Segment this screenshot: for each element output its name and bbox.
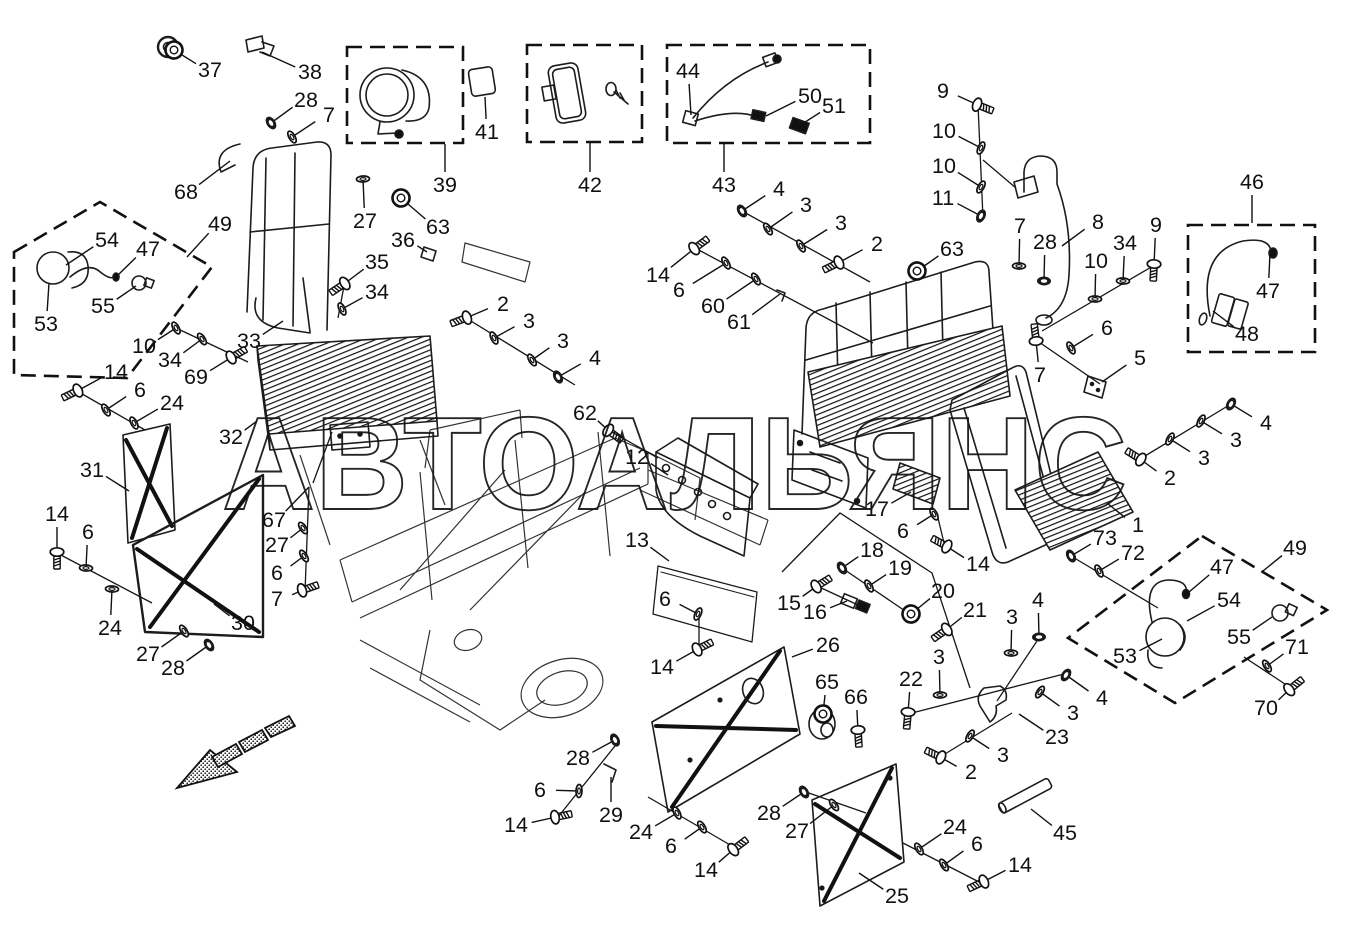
part-number: 42: [578, 173, 602, 197]
part-number: 44: [676, 59, 700, 83]
bolt-icon: [1027, 323, 1043, 346]
callout-2: 2: [1123, 445, 1176, 490]
washer-icon: [100, 403, 112, 417]
callout-49: 49: [1263, 536, 1307, 571]
callout-39: 39: [433, 144, 457, 197]
part-number: 15: [777, 591, 801, 615]
part-number: 10: [1084, 249, 1108, 273]
part-number: 24: [160, 391, 184, 415]
callout-9: 9: [1146, 213, 1162, 281]
callout-3: 3: [1034, 685, 1079, 725]
part-number: 48: [1235, 322, 1259, 346]
part-number: 22: [899, 667, 923, 691]
part-number: 47: [1256, 279, 1280, 303]
part-number: 28: [161, 656, 185, 680]
mirror-42-art: [542, 62, 628, 124]
part-number: 7: [323, 103, 335, 127]
part-number: 31: [80, 458, 104, 482]
part-number: 2: [1164, 466, 1176, 490]
part-number: 14: [966, 552, 990, 576]
part-number: 68: [174, 180, 198, 204]
grommet-icon: [814, 705, 833, 724]
callout-3: 3: [1164, 432, 1210, 470]
callout-45: 45: [1031, 809, 1077, 845]
callout-6: 6: [665, 820, 708, 858]
nut-icon: [797, 784, 812, 801]
callout-29: 29: [599, 777, 623, 827]
part-number: 63: [426, 215, 450, 239]
exploded-parts-diagram-page: 3738287682763363534394142434450514954475…: [0, 0, 1345, 937]
bolt-icon: [50, 548, 64, 569]
part-number: 51: [822, 94, 846, 118]
part-number: 49: [208, 212, 232, 236]
part-number: 38: [298, 60, 322, 84]
part-number: 54: [95, 228, 119, 252]
washer-icon: [1195, 414, 1206, 428]
callout-36: 36: [391, 228, 427, 252]
part-number: 6: [971, 832, 983, 856]
callout-18: 18: [835, 538, 884, 576]
part-number: 2: [965, 760, 977, 784]
washer-icon: [178, 624, 190, 638]
callout-6: 6: [1065, 316, 1113, 355]
bolt-icon: [821, 255, 846, 277]
part-number: 28: [757, 801, 781, 825]
part-number: 55: [91, 294, 115, 318]
callout-14: 14: [966, 853, 1032, 895]
callout-47: 47: [1189, 555, 1234, 592]
callout-2: 2: [449, 292, 509, 330]
callout-3: 3: [933, 645, 947, 698]
part-number: 14: [694, 858, 718, 882]
washer-icon: [298, 549, 310, 563]
bolt-icon: [929, 621, 954, 644]
callout-6: 6: [534, 778, 582, 802]
part-number: 24: [629, 820, 653, 844]
callout-3: 3: [762, 193, 812, 236]
part-number: 61: [727, 310, 751, 334]
part-number: 23: [1045, 725, 1069, 749]
part-number: 65: [815, 670, 839, 694]
nut-icon: [608, 732, 622, 749]
part-number: 24: [943, 815, 967, 839]
part-number: 28: [1033, 230, 1057, 254]
bolt-icon: [327, 275, 352, 298]
part-number: 7: [271, 587, 283, 611]
callout-23: 23: [1019, 714, 1069, 749]
part-number: 33: [237, 329, 261, 353]
part-number: 28: [294, 88, 318, 112]
washer-icon: [1116, 278, 1129, 285]
bolt-icon: [1146, 259, 1161, 281]
callout-24: 24: [913, 815, 967, 856]
washer-icon: [828, 798, 840, 812]
callout-42: 42: [578, 143, 602, 197]
part-number: 28: [566, 746, 590, 770]
part-number: 54: [1217, 588, 1241, 612]
washer-icon: [576, 784, 582, 797]
washer-icon: [976, 141, 987, 155]
callout-30: 30: [214, 604, 255, 635]
callout-2: 2: [923, 744, 977, 784]
callout-6: 6: [659, 587, 703, 621]
callout-47: 47: [1256, 253, 1280, 303]
part-number: 8: [1092, 210, 1104, 234]
callout-49: 49: [187, 212, 232, 257]
part-number: 14: [650, 655, 674, 679]
washer-icon: [526, 353, 538, 367]
part-number: 14: [646, 263, 670, 287]
part-number: 46: [1240, 170, 1264, 194]
washer-icon: [1088, 296, 1101, 302]
nut-icon: [1224, 396, 1239, 413]
part-number: 27: [353, 209, 377, 233]
washer-icon: [1164, 432, 1176, 446]
callout-2: 2: [821, 232, 883, 276]
harness-43-art: [683, 53, 810, 134]
part-number: 3: [1198, 446, 1210, 470]
bolt-icon: [923, 744, 948, 765]
grommet-icon: [905, 259, 928, 282]
nut-icon: [835, 560, 850, 577]
callout-54: 54: [66, 228, 119, 265]
bolt-icon: [687, 233, 712, 256]
callout-50: 50: [766, 84, 822, 116]
callout-44: 44: [676, 59, 700, 115]
part-number: 53: [1113, 644, 1137, 668]
part-number: 3: [1006, 605, 1018, 629]
callout-68: 68: [174, 161, 230, 204]
part-number: 27: [785, 819, 809, 843]
part-number: 55: [1227, 625, 1251, 649]
washer-icon: [933, 692, 946, 698]
callout-46: 46: [1240, 170, 1264, 223]
callout-54: 54: [1187, 588, 1241, 621]
bolt-icon: [60, 383, 85, 405]
part-number: 3: [933, 645, 945, 669]
part-number: 6: [659, 587, 671, 611]
part-number: 26: [816, 633, 840, 657]
washer-icon: [975, 180, 987, 194]
part-number: 3: [557, 329, 569, 353]
diagram-canvas: 3738287682763363534394142434450514954475…: [0, 0, 1345, 937]
washer-icon: [1034, 685, 1046, 699]
part-number: 4: [589, 346, 601, 370]
watermark-text: АВТОАЛЬЯНС: [222, 390, 1127, 537]
callout-47: 47: [118, 237, 160, 275]
nut-icon: [1032, 632, 1046, 641]
part-number: 10: [932, 154, 956, 178]
part-number: 39: [433, 173, 457, 197]
part-number: 34: [1113, 231, 1137, 255]
callout-5: 5: [1102, 346, 1146, 382]
part-number: 3: [1067, 701, 1079, 725]
washer-icon: [105, 586, 118, 593]
washer-icon: [693, 607, 704, 621]
callout-41: 41: [475, 97, 499, 144]
part-number: 45: [1053, 821, 1077, 845]
washer-icon: [79, 565, 92, 572]
part-number: 20: [931, 579, 955, 603]
part-number: 18: [860, 538, 884, 562]
callout-48: 48: [1213, 311, 1259, 346]
part-number: 7: [1014, 214, 1026, 238]
part-number: 14: [1008, 853, 1032, 877]
part-number: 70: [1254, 696, 1278, 720]
part-number: 37: [198, 58, 222, 82]
washer-icon: [720, 256, 732, 270]
part-number: 2: [497, 292, 509, 316]
callout-53: 53: [34, 283, 58, 336]
part-number: 6: [665, 834, 677, 858]
part-number: 4: [1260, 411, 1272, 435]
part-number: 1: [1132, 513, 1144, 537]
washer-icon: [1093, 564, 1104, 578]
washer-icon: [795, 239, 807, 253]
part-number: 2: [871, 232, 883, 256]
part-number: 4: [1096, 686, 1108, 710]
callout-4: 4: [1032, 588, 1046, 642]
washer-icon: [938, 858, 950, 872]
panel-31: [123, 424, 175, 543]
bolt-icon: [550, 807, 573, 824]
part-number: 21: [963, 598, 987, 622]
panel-26: [652, 647, 800, 812]
part-number: 72: [1121, 541, 1145, 565]
callout-55: 55: [1227, 617, 1272, 649]
washer-icon: [671, 806, 682, 820]
nut-icon: [1037, 276, 1051, 285]
part-number: 9: [937, 79, 949, 103]
washer-icon: [170, 321, 182, 335]
part-number: 3: [835, 211, 847, 235]
part-number: 25: [885, 884, 909, 908]
part-number: 14: [504, 813, 528, 837]
callout-34: 34: [1113, 231, 1137, 284]
part-number: 34: [365, 280, 389, 304]
washer-icon: [196, 332, 208, 346]
nut-icon: [735, 203, 750, 220]
grommet-icon: [899, 602, 923, 626]
callout-14: 14: [929, 532, 990, 576]
part-number: 49: [1283, 536, 1307, 560]
callout-61: 61: [727, 294, 780, 334]
part-number: 16: [803, 600, 827, 624]
part-number: 47: [136, 237, 160, 261]
callout-14: 14: [45, 502, 69, 569]
bolt-icon: [449, 310, 474, 330]
part-number: 35: [365, 250, 389, 274]
part-number: 4: [1032, 588, 1044, 612]
part-number: 7: [1034, 363, 1046, 387]
callout-3: 3: [795, 211, 847, 253]
rod-45: [997, 778, 1052, 814]
callout-14: 14: [650, 636, 715, 679]
callout-7: 7: [1012, 214, 1026, 269]
washer-icon: [863, 579, 875, 593]
callout-3: 3: [526, 329, 569, 367]
bolt-icon: [851, 725, 866, 747]
washer-icon: [750, 272, 762, 286]
part-number: 60: [701, 294, 725, 318]
part-number: 11: [932, 186, 954, 210]
part-number: 29: [599, 803, 623, 827]
part-number: 47: [1210, 555, 1234, 579]
part-number: 50: [798, 84, 822, 108]
part-number: 3: [800, 193, 812, 217]
grommet-icon: [162, 38, 185, 61]
clip-29: [604, 764, 616, 782]
washer-icon: [762, 222, 774, 236]
part-number: 27: [136, 642, 160, 666]
washer-icon: [696, 820, 708, 834]
part-number: 30: [231, 611, 255, 635]
washer-icon: [128, 416, 139, 430]
work-lamp-art: [360, 68, 429, 138]
callout-3: 3: [488, 309, 535, 345]
part-number: 36: [391, 228, 415, 252]
callout-4: 4: [1058, 667, 1108, 710]
part-number: 10: [932, 119, 956, 143]
part-number: 6: [82, 520, 94, 544]
part-number: 10: [132, 334, 156, 358]
callout-4: 4: [735, 177, 785, 219]
part-number: 3: [997, 743, 1009, 767]
box-mirror-42: [527, 45, 642, 142]
callout-14: 14: [60, 360, 128, 404]
part-number: 41: [475, 120, 499, 144]
bracket-23: [978, 686, 1006, 722]
part-number: 6: [534, 778, 546, 802]
nut-icon: [1064, 548, 1079, 565]
bolt-icon: [971, 97, 996, 118]
callout-22: 22: [899, 667, 923, 730]
part-number: 53: [34, 312, 58, 336]
part-number: 6: [134, 378, 146, 402]
part-number: 66: [844, 685, 868, 709]
part-number: 3: [1230, 428, 1242, 452]
washer-icon: [964, 729, 976, 743]
part-number: 14: [45, 502, 69, 526]
part-number: 71: [1285, 635, 1309, 659]
washer-icon: [1261, 659, 1273, 673]
callout-6: 6: [79, 520, 94, 571]
part-number: 34: [158, 348, 182, 372]
washer-icon: [356, 176, 369, 183]
washer-icon: [488, 331, 499, 345]
part-number: 6: [271, 561, 283, 585]
washer-icon: [1004, 650, 1017, 656]
callout-37: 37: [162, 38, 222, 82]
part-number: 6: [1101, 316, 1113, 340]
part-number: 3: [523, 309, 535, 333]
callout-26: 26: [792, 633, 840, 657]
part-number: 9: [1150, 213, 1162, 237]
callout-31: 31: [80, 458, 129, 491]
part-number: 14: [104, 360, 128, 384]
box-lamp-right-49: [1068, 536, 1327, 703]
callout-3: 3: [1004, 605, 1018, 656]
washer-icon: [286, 130, 298, 144]
lens-41-art: [468, 66, 496, 96]
part-number: 63: [940, 237, 964, 261]
part-number: 69: [184, 365, 208, 389]
box-lamp-39: [347, 47, 463, 143]
part-number: 5: [1134, 346, 1146, 370]
callout-9: 9: [937, 79, 995, 117]
callout-71: 71: [1261, 635, 1309, 673]
washer-icon: [1012, 263, 1025, 269]
bolt-icon: [809, 572, 834, 595]
callout-7: 7: [1027, 323, 1046, 387]
part-number: 24: [98, 616, 122, 640]
callout-66: 66: [844, 685, 868, 747]
callout-27: 27: [353, 176, 377, 233]
direction-arrow: [177, 716, 295, 788]
bolt-icon: [726, 834, 751, 858]
part-number: 4: [773, 177, 785, 201]
callout-43: 43: [712, 144, 736, 197]
callout-55: 55: [91, 286, 136, 318]
bolt-icon: [900, 707, 915, 729]
callout-28: 28: [1033, 230, 1057, 286]
callout-21: 21: [929, 598, 987, 645]
nut-icon: [974, 208, 988, 225]
grommet-icon: [389, 186, 413, 210]
washer-icon: [913, 842, 925, 856]
callout-24: 24: [98, 586, 122, 640]
washer-icon: [1065, 341, 1077, 355]
part-number: 19: [888, 556, 912, 580]
callout-63: 63: [905, 237, 964, 283]
callout-25: 25: [859, 873, 909, 908]
nut-icon: [201, 637, 216, 654]
part-number: 43: [712, 173, 736, 197]
callout-16: 16: [803, 600, 847, 624]
callout-38: 38: [262, 52, 322, 84]
bolt-icon: [296, 578, 320, 598]
callout-28: 28: [161, 637, 217, 680]
part-number: 6: [673, 278, 685, 302]
callout-28: 28: [566, 732, 622, 770]
nut-icon: [263, 115, 278, 132]
callout-65: 65: [814, 670, 839, 723]
bolt-icon: [690, 636, 715, 658]
